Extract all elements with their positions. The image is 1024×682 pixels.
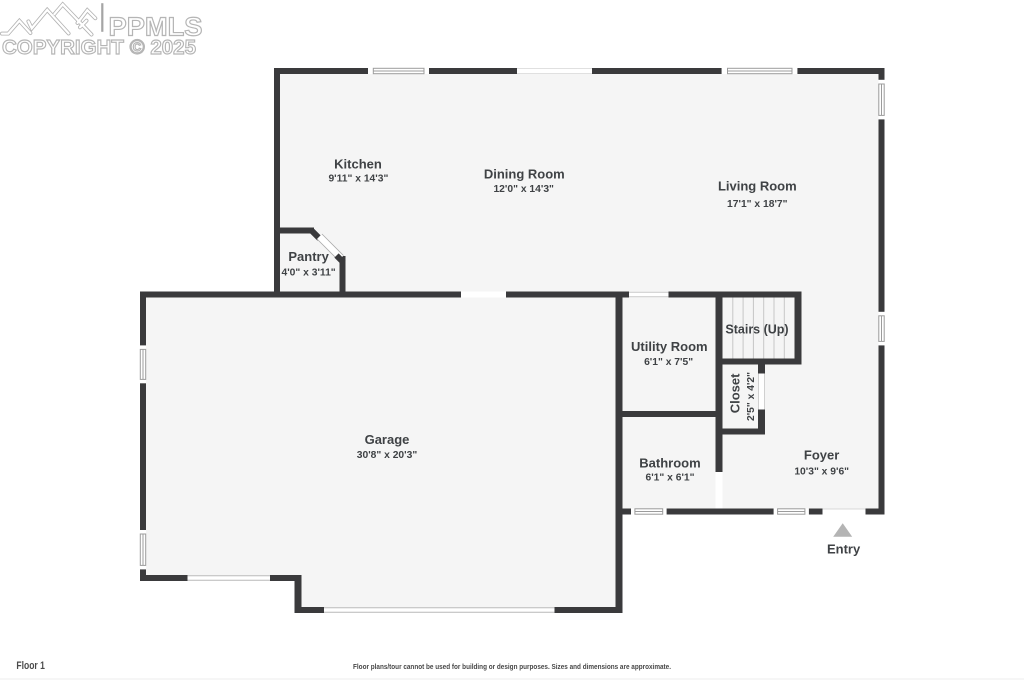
svg-text:2'5" x 4'2": 2'5" x 4'2" — [746, 372, 757, 421]
svg-text:12'0" x 14'3": 12'0" x 14'3" — [493, 184, 554, 195]
svg-text:6'1" x 6'1": 6'1" x 6'1" — [645, 473, 694, 484]
svg-text:Closet: Closet — [728, 373, 743, 413]
svg-text:Dining Room: Dining Room — [484, 167, 565, 182]
svg-text:Utility Room: Utility Room — [631, 339, 708, 354]
svg-text:COPYRIGHT © 2025: COPYRIGHT © 2025 — [2, 36, 196, 59]
svg-text:Kitchen: Kitchen — [334, 157, 382, 172]
svg-text:6'1" x 7'5": 6'1" x 7'5" — [644, 357, 693, 368]
svg-text:Entry: Entry — [827, 542, 861, 557]
svg-text:4'0" x 3'11": 4'0" x 3'11" — [282, 268, 336, 279]
svg-text:10'3" x 9'6": 10'3" x 9'6" — [794, 467, 849, 478]
svg-text:Foyer: Foyer — [804, 448, 839, 463]
svg-text:9'11" x 14'3": 9'11" x 14'3" — [328, 174, 388, 185]
svg-text:30'8" x 20'3": 30'8" x 20'3" — [357, 450, 418, 461]
svg-text:Garage: Garage — [365, 432, 410, 447]
svg-text:Stairs (Up): Stairs (Up) — [725, 323, 788, 337]
svg-text:Living Room: Living Room — [718, 179, 797, 194]
svg-text:Bathroom: Bathroom — [639, 455, 700, 470]
svg-text:Floor plans/tour cannot be use: Floor plans/tour cannot be used for buil… — [353, 662, 671, 671]
svg-text:17'1" x 18'7": 17'1" x 18'7" — [727, 199, 788, 210]
svg-text:Floor 1: Floor 1 — [16, 660, 45, 672]
svg-text:Pantry: Pantry — [288, 249, 329, 264]
